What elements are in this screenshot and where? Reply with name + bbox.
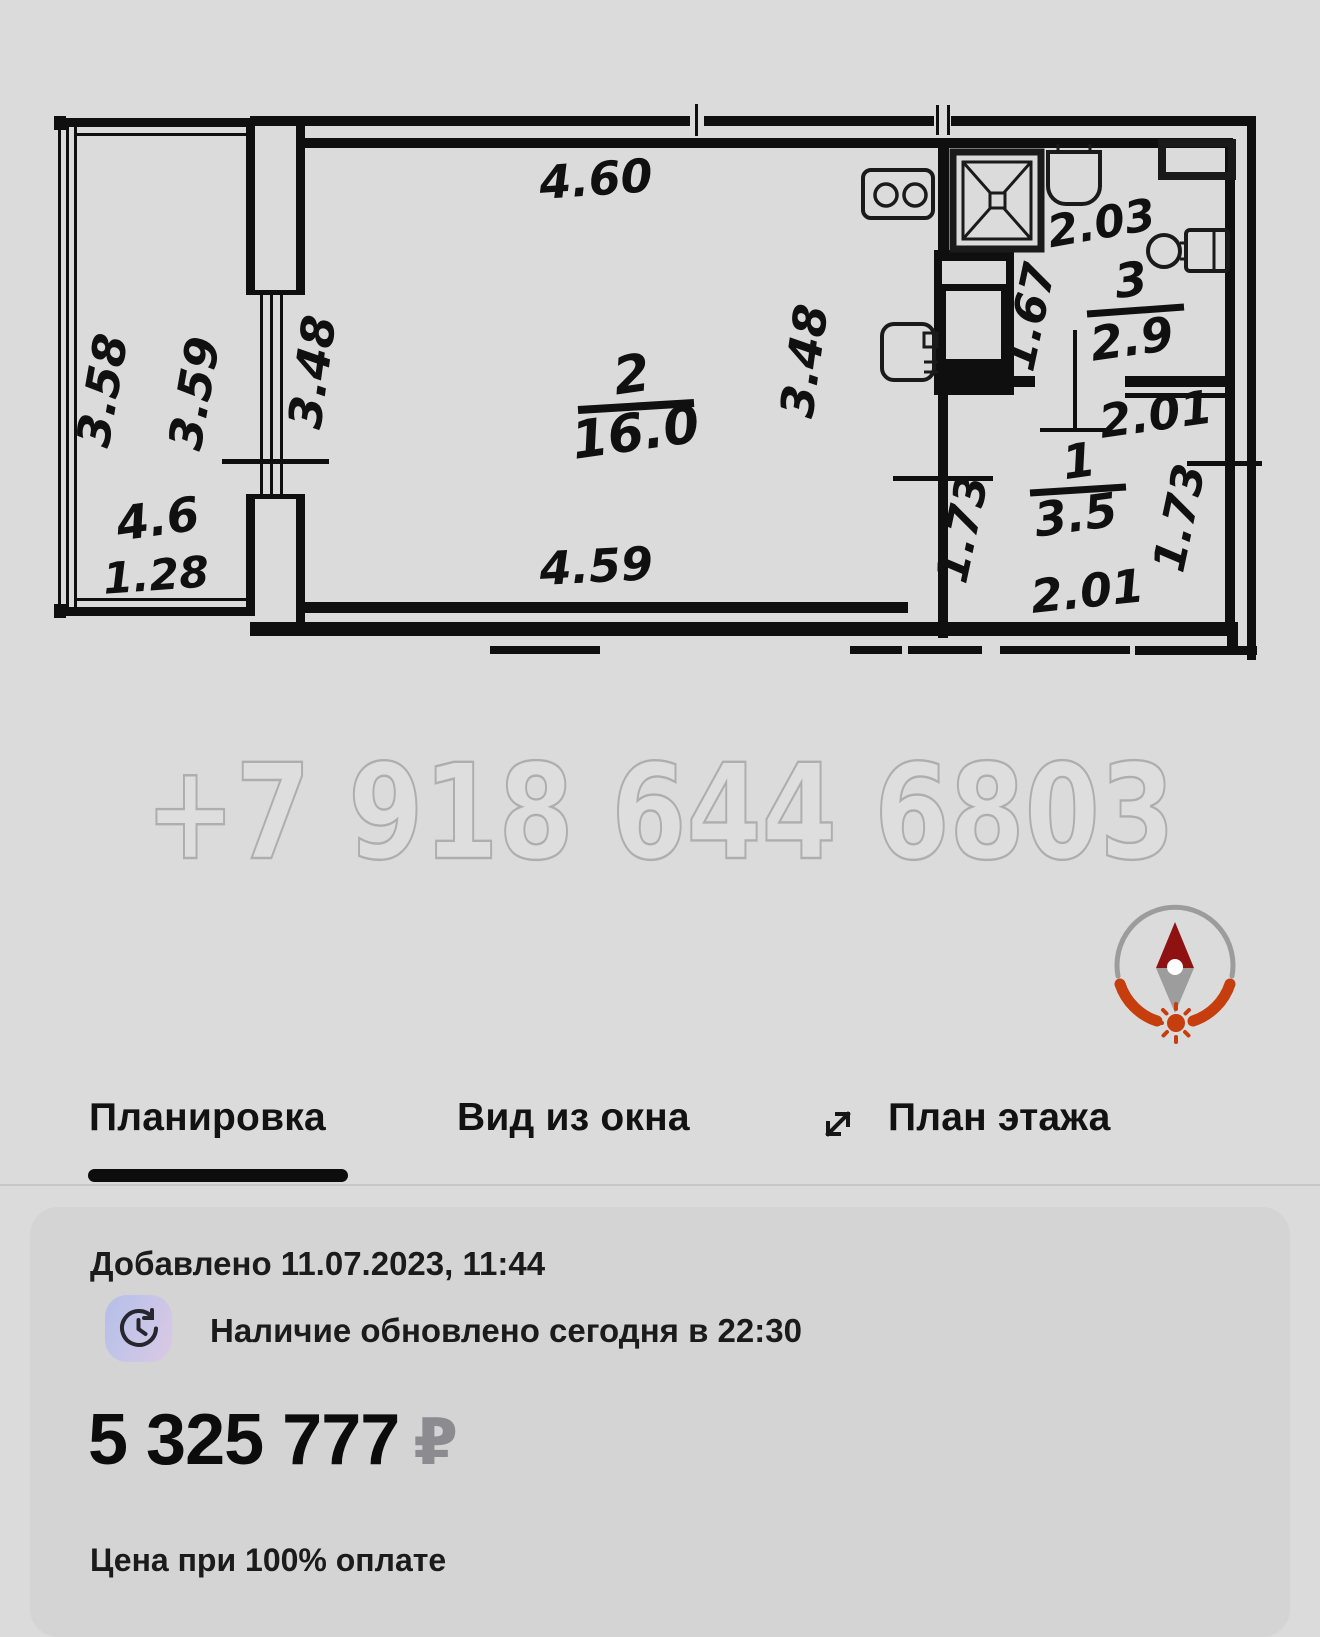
dim-hall-right: 1.73 bbox=[1144, 460, 1216, 577]
floorplan-image[interactable]: 3.58 3.59 4.6 1.28 4.60 3.48 3.48 2 16.0… bbox=[0, 0, 1320, 1050]
gallery-tabs: Планировка Вид из окна План этажа bbox=[0, 1088, 1320, 1158]
dim-hall-left: 1.73 bbox=[927, 471, 999, 588]
room2-number: 2 bbox=[610, 343, 654, 407]
availability-text: Наличие обновлено сегодня в 22:30 bbox=[210, 1312, 802, 1350]
price-value: 5 325 777 bbox=[88, 1400, 399, 1480]
active-tab-underline bbox=[88, 1169, 348, 1182]
added-date-text: Добавлено 11.07.2023, 11:44 bbox=[90, 1245, 545, 1283]
compass-icon bbox=[1117, 907, 1233, 1042]
expand-icon[interactable] bbox=[816, 1102, 860, 1146]
tab-planirovka[interactable]: Планировка bbox=[89, 1096, 326, 1140]
dim-room2-bottom: 4.59 bbox=[537, 536, 654, 596]
dim-hall-top: 2.01 bbox=[1096, 380, 1216, 449]
dim-balcony-right: 3.59 bbox=[158, 333, 231, 454]
listing-info-card: Добавлено 11.07.2023, 11:44 Наличие обно… bbox=[30, 1207, 1290, 1637]
price-row: 5 325 777₽ bbox=[88, 1399, 458, 1481]
tab-plan-etazha[interactable]: План этажа bbox=[888, 1096, 1111, 1140]
bath-number: 3 bbox=[1111, 251, 1151, 310]
bath-area: 2.9 bbox=[1087, 307, 1177, 373]
dim-room2-right: 3.48 bbox=[770, 301, 839, 421]
currency-ruble-sign: ₽ bbox=[413, 1406, 458, 1480]
watermark-phone: +7 918 644 6803 bbox=[145, 736, 1175, 890]
dim-bath-top: 2.03 bbox=[1044, 189, 1160, 258]
tab-vid-iz-okna[interactable]: Вид из окна bbox=[457, 1096, 690, 1140]
compass-sun-icon bbox=[1157, 1004, 1195, 1042]
dim-balcony-area: 4.6 bbox=[112, 487, 203, 553]
tabs-divider bbox=[0, 1184, 1320, 1186]
dim-room2-top: 4.60 bbox=[536, 148, 654, 210]
availability-clock-icon bbox=[105, 1295, 172, 1362]
hall-number: 1 bbox=[1059, 432, 1099, 491]
dim-room2-left: 3.48 bbox=[278, 312, 347, 432]
dim-hall-bottom: 2.01 bbox=[1028, 558, 1147, 624]
hall-area: 3.5 bbox=[1031, 483, 1121, 549]
dim-balcony-width: 1.28 bbox=[101, 547, 210, 604]
price-note: Цена при 100% оплате bbox=[90, 1542, 446, 1579]
